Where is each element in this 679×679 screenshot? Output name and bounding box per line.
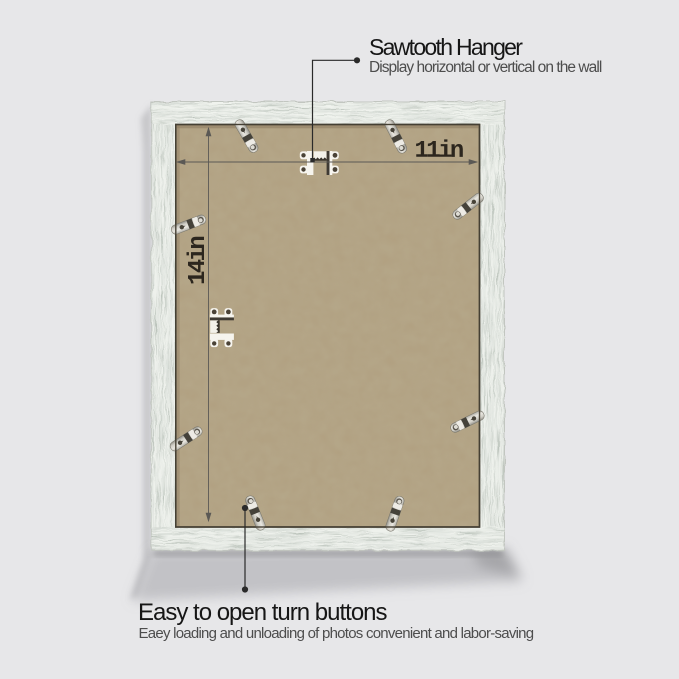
svg-text:14in: 14in: [185, 237, 212, 285]
svg-text:11in: 11in: [414, 138, 462, 165]
